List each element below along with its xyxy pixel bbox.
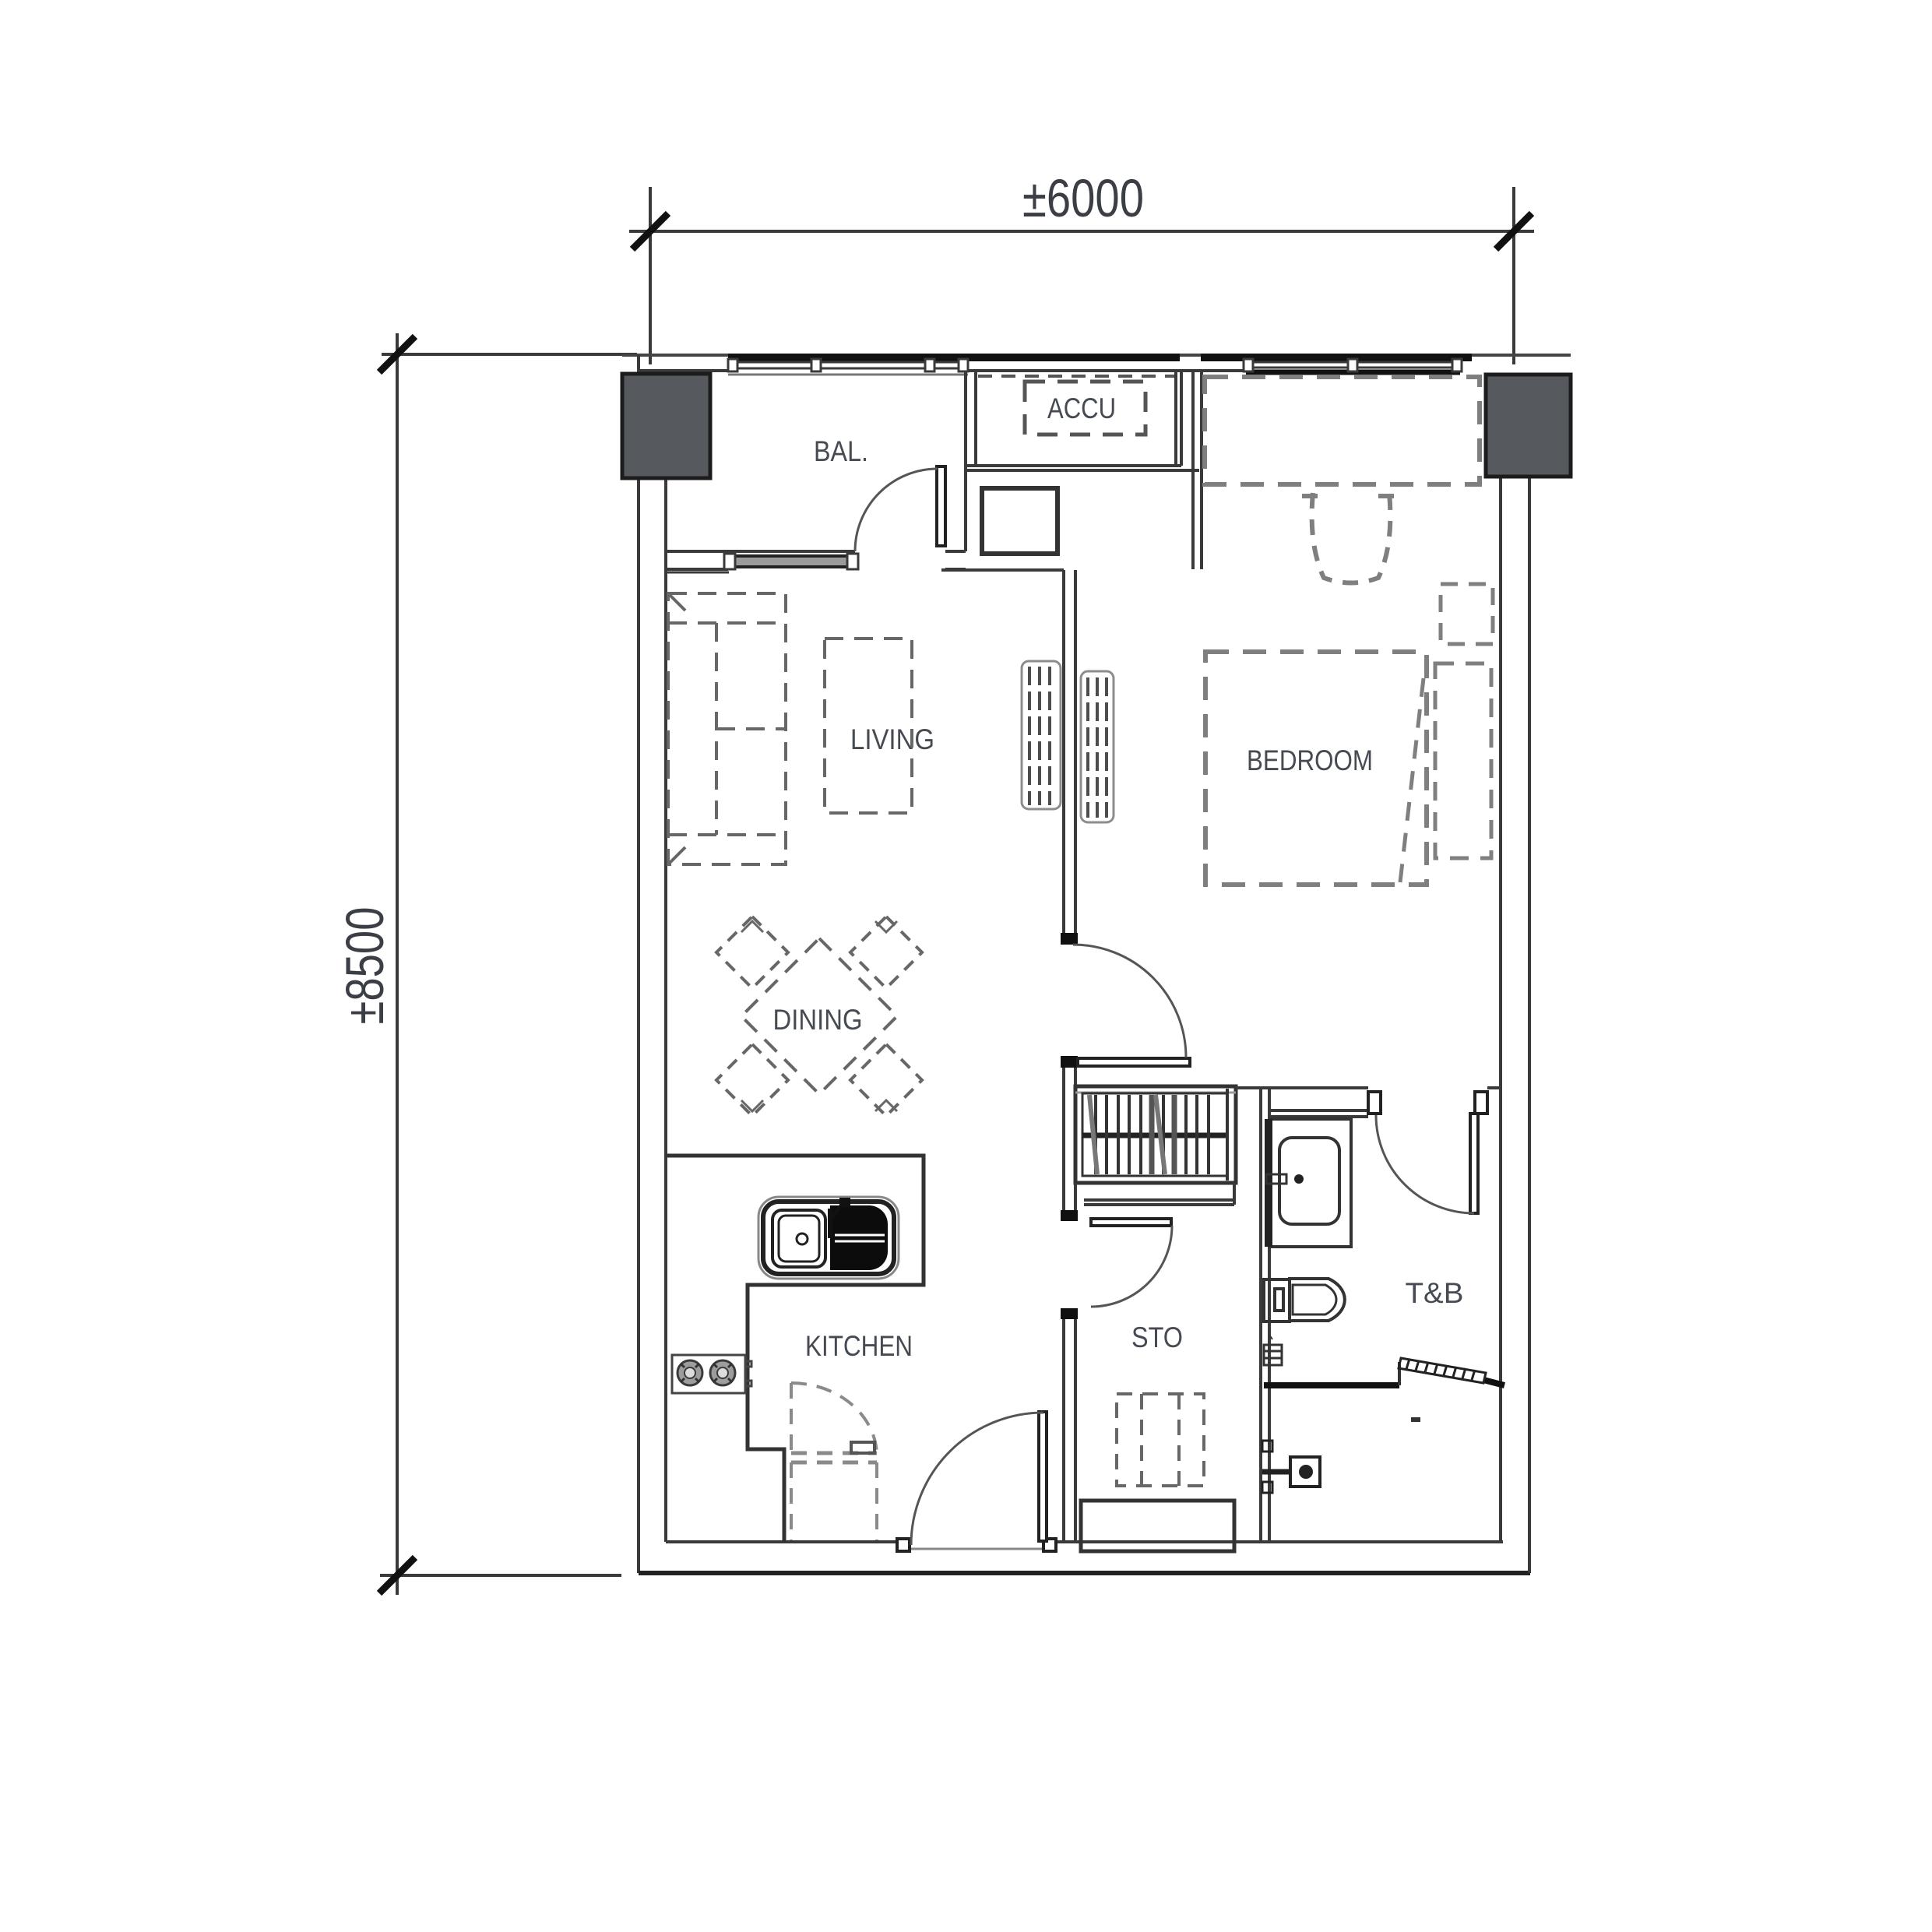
- svg-text:±6000: ±6000: [1022, 168, 1144, 228]
- svg-text:±8500: ±8500: [335, 907, 395, 1025]
- svg-text:KITCHEN: KITCHEN: [805, 1330, 913, 1362]
- svg-text:BEDROOM: BEDROOM: [1247, 744, 1373, 776]
- svg-text:DINING: DINING: [773, 1004, 863, 1036]
- svg-text:LIVING: LIVING: [850, 723, 934, 755]
- svg-text:BAL.: BAL.: [814, 435, 868, 467]
- svg-text:ACCU: ACCU: [1047, 392, 1116, 424]
- svg-text:T&B: T&B: [1406, 1277, 1464, 1309]
- svg-text:STO: STO: [1131, 1321, 1183, 1353]
